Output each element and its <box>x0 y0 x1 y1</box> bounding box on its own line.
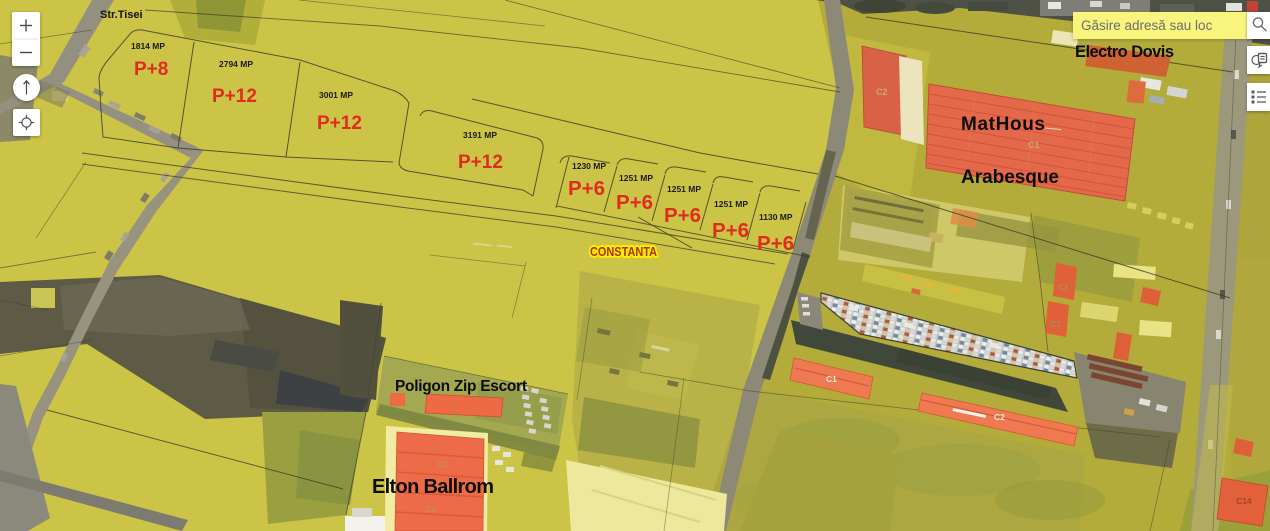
svg-text:P+6: P+6 <box>757 232 794 255</box>
svg-text:Poligon Zip Escort: Poligon Zip Escort <box>395 378 527 395</box>
svg-text:1251 MP: 1251 MP <box>619 173 653 183</box>
svg-text:P+6: P+6 <box>616 191 653 214</box>
svg-text:C1: C1 <box>425 504 436 514</box>
svg-text:MatHous: MatHous <box>961 114 1045 135</box>
svg-text:P+12: P+12 <box>317 113 362 134</box>
svg-text:C14: C14 <box>1236 496 1252 506</box>
svg-text:C1: C1 <box>1050 319 1061 329</box>
svg-text:1230 MP: 1230 MP <box>572 161 606 171</box>
svg-text:P+12: P+12 <box>212 86 257 107</box>
svg-text:Elton Ballrom: Elton Ballrom <box>372 476 494 498</box>
svg-text:1814 MP: 1814 MP <box>131 41 165 51</box>
svg-text:C: C <box>452 401 458 411</box>
svg-text:P+8: P+8 <box>134 59 168 80</box>
svg-text:1251 MP: 1251 MP <box>667 184 701 194</box>
svg-text:3001 MP: 3001 MP <box>319 90 353 100</box>
svg-text:Electro Dovis: Electro Dovis <box>1075 43 1174 61</box>
svg-text:C2: C2 <box>437 459 448 469</box>
svg-text:1251 MP: 1251 MP <box>714 199 748 209</box>
svg-text:P+6: P+6 <box>712 219 749 242</box>
svg-text:2794 MP: 2794 MP <box>219 59 253 69</box>
svg-text:C1: C1 <box>1028 140 1040 150</box>
svg-text:Arabesque: Arabesque <box>961 167 1059 188</box>
svg-text:1130 MP: 1130 MP <box>759 212 793 222</box>
svg-text:3191 MP: 3191 MP <box>463 130 497 140</box>
svg-text:C2: C2 <box>876 87 888 97</box>
svg-text:C1: C1 <box>826 374 837 384</box>
svg-text:C2: C2 <box>994 412 1005 422</box>
svg-text:C1: C1 <box>1058 282 1069 292</box>
svg-text:P+6: P+6 <box>664 204 701 227</box>
svg-text:P+12: P+12 <box>458 152 503 173</box>
svg-text:Str.Tisei: Str.Tisei <box>100 9 143 21</box>
svg-text:P+6: P+6 <box>568 177 605 200</box>
svg-text:CONSTANTA: CONSTANTA <box>590 244 658 259</box>
